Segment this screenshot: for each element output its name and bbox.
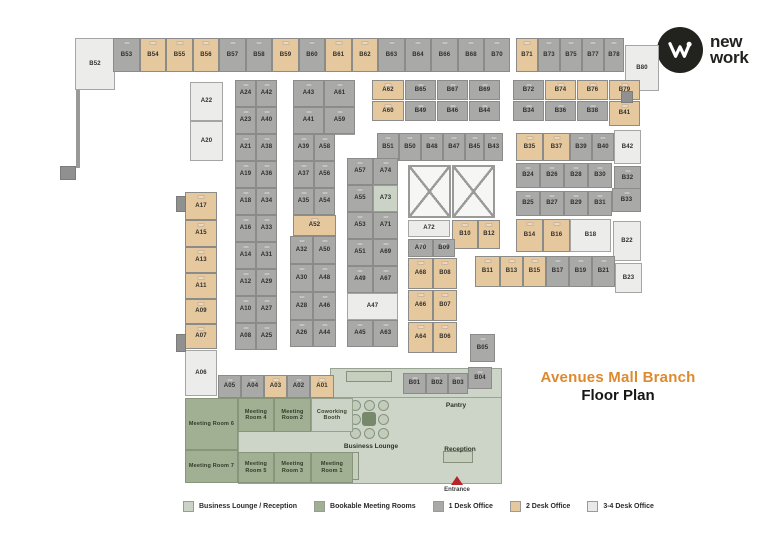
business-lounge-label: Business Lounge [336,443,406,450]
room-a25: A25 [256,323,277,350]
room-b06: B06 [433,322,457,353]
room-b05: B05 [470,334,495,362]
room-b08: B08 [433,258,457,289]
room-a70: A70 [408,239,433,257]
room-b47: B47 [443,133,465,161]
room-b35: B35 [516,133,543,161]
room-a27: A27 [256,296,277,323]
room-a47: A47 [347,293,398,320]
room-a08: A08 [235,323,256,350]
room-meeting-room-1: Meeting Room 1 [311,452,353,483]
floor-plan: new work Avenues Mall Branch Floor Plan … [0,0,777,549]
room-a61: A61 [324,80,355,107]
entrance-label: Entrance [435,487,479,493]
room-a31: A31 [256,242,277,269]
room-a52: A52 [293,215,336,236]
room-b63: B63 [378,38,405,72]
room-b21: B21 [592,256,615,287]
room-b11: B11 [475,256,500,287]
wall-segment [76,88,80,168]
room-a26: A26 [290,320,313,347]
room-a30: A30 [290,264,313,292]
room-a29: A29 [256,269,277,296]
room-a20: A20 [190,121,223,161]
room-b53: B53 [113,38,140,72]
w-mark-icon [665,35,695,65]
room-b15: B15 [523,256,546,287]
room-a53: A53 [347,212,373,239]
room-a07: A07 [185,324,217,349]
room-a21: A21 [235,134,256,161]
room-a66: A66 [408,290,433,321]
room-a38: A38 [256,134,277,161]
room-a51: A51 [347,239,373,266]
room-b45: B45 [465,133,484,161]
room-a05: A05 [218,375,241,398]
room-a48: A48 [313,264,336,292]
title-block: Avenues Mall Branch Floor Plan [520,369,716,404]
room-a02: A02 [287,375,310,398]
room-b58: B58 [246,38,272,72]
room-b42: B42 [614,130,641,164]
room-b65: B65 [405,80,436,100]
room-b34: B34 [513,101,544,121]
room-meeting-room-4: Meeting Room 4 [238,398,274,432]
room-a69: A69 [373,239,398,266]
room-b07: B07 [433,290,457,321]
newwork-logo-icon [657,27,703,73]
room-a37: A37 [293,161,314,188]
room-a64: A64 [408,322,433,353]
room-b76: B76 [577,80,608,100]
room-a45: A45 [347,320,373,347]
room-a32: A32 [290,236,313,264]
room-a67: A67 [373,266,398,293]
room-a23: A23 [235,107,256,134]
pantry-label: Pantry [436,402,476,409]
room-a50: A50 [313,236,336,264]
room-b66: B66 [431,38,458,72]
room-a01: A01 [310,375,334,398]
room-b78: B78 [604,38,624,72]
room-b55: B55 [166,38,193,72]
room-b17: B17 [546,256,569,287]
room-b75: B75 [560,38,582,72]
room-b61: B61 [325,38,352,72]
newwork-logo: new work [657,27,748,73]
room-a60: A60 [372,101,404,121]
room-a04: A04 [241,375,264,398]
room-b77: B77 [582,38,604,72]
room-b27: B27 [540,191,564,216]
legend-swatch [587,501,598,512]
legend-swatch [510,501,521,512]
legend-swatch [433,501,444,512]
room-b26: B26 [540,163,564,188]
room-b44: B44 [469,101,500,121]
room-b29: B29 [564,191,588,216]
room-b28: B28 [564,163,588,188]
room-b41: B41 [609,101,640,126]
logo-line2: work [710,50,748,66]
room-b56: B56 [193,38,219,72]
room-b51: B51 [377,133,399,161]
room-a19: A19 [235,161,256,188]
legend-label: Business Lounge / Reception [199,503,297,510]
room-meeting-room-7: Meeting Room 7 [185,450,238,483]
room-b71: B71 [516,38,538,72]
room-coworking-booth: Coworking Booth [311,398,353,432]
room-a42: A42 [256,80,277,107]
room-meeting-room-3: Meeting Room 3 [274,452,311,483]
room-b02: B02 [426,373,448,394]
elevator-shaft [408,165,451,218]
legend-label: 1 Desk Office [449,503,493,510]
room-b10: B10 [452,220,478,249]
room-b39: B39 [570,133,592,161]
room-a44: A44 [313,320,336,347]
reception-label: Reception [434,446,486,453]
lounge-table [378,428,389,439]
room-b32: B32 [614,166,641,190]
room-b24: B24 [516,163,540,188]
branch-title: Avenues Mall Branch [520,369,716,386]
room-a36: A36 [256,161,277,188]
room-b16: B16 [543,219,570,252]
legend-swatch [314,501,325,512]
room-a55: A55 [347,185,373,212]
legend-item-business-lounge-/-reception: Business Lounge / Reception [183,501,297,512]
room-a18: A18 [235,188,256,215]
legend: Business Lounge / ReceptionBookable Meet… [183,501,654,512]
room-b19: B19 [569,256,592,287]
room-b04: B04 [468,367,492,389]
legend-label: 3-4 Desk Office [603,503,654,510]
room-a17: A17 [185,192,217,220]
room-a57: A57 [347,158,373,185]
room-b59: B59 [272,38,299,72]
room-b09: B09 [433,239,455,257]
room-a22: A22 [190,82,223,121]
room-b12: B12 [478,220,500,249]
room-a33: A33 [256,215,277,242]
room-a46: A46 [313,292,336,320]
room-a24: A24 [235,80,256,107]
room-a16: A16 [235,215,256,242]
room-a39: A39 [293,134,314,161]
room-a03: A03 [264,375,287,398]
room-a68: A68 [408,258,433,289]
room-b70: B70 [484,38,510,72]
room-b74: B74 [545,80,576,100]
room-a06: A06 [185,350,217,396]
lounge-table [378,400,389,411]
room-a12: A12 [235,269,256,296]
legend-swatch [183,501,194,512]
room-b40: B40 [592,133,614,161]
room-meeting-room-6: Meeting Room 6 [185,398,238,450]
room-b52: B52 [75,38,115,90]
room-b03: B03 [448,373,468,394]
room-b38: B38 [577,101,608,121]
room-b69: B69 [469,80,500,100]
legend-item-3-4-desk-office: 3-4 Desk Office [587,501,654,512]
room-a11: A11 [185,273,217,299]
room-a72: A72 [408,220,450,237]
lounge-table [364,400,375,411]
room-b13: B13 [500,256,523,287]
room-b57: B57 [219,38,246,72]
lounge-furniture [346,371,392,382]
room-a71: A71 [373,212,398,239]
room-b72: B72 [513,80,544,100]
room-a54: A54 [314,188,335,215]
room-a34: A34 [256,188,277,215]
room-b37: B37 [543,133,570,161]
room-b46: B46 [437,101,468,121]
entrance-marker-icon [451,476,463,485]
newwork-logo-text: new work [710,34,748,66]
room-a28: A28 [290,292,313,320]
lounge-plant [362,412,376,426]
room-a40: A40 [256,107,277,134]
legend-item-1-desk-office: 1 Desk Office [433,501,493,512]
room-a74: A74 [373,158,398,185]
room-a10: A10 [235,296,256,323]
room-b54: B54 [140,38,166,72]
door-marker [176,334,186,352]
legend-label: Bookable Meeting Rooms [330,503,416,510]
room-b33: B33 [612,188,641,212]
room-b31: B31 [588,191,612,216]
room-b48: B48 [421,133,443,161]
room-a15: A15 [185,220,217,247]
door-marker [176,196,186,212]
lounge-table [378,414,389,425]
room-b25: B25 [516,191,540,216]
room-b14: B14 [516,219,543,252]
room-b49: B49 [405,101,436,121]
floor-plan-subtitle: Floor Plan [520,387,716,404]
room-meeting-room-2: Meeting Room 2 [274,398,311,432]
room-a56: A56 [314,161,335,188]
room-a63: A63 [373,320,398,347]
room-a59: A59 [324,107,355,134]
room-b01: B01 [403,373,426,394]
room-b22: B22 [613,221,641,261]
room-b43: B43 [484,133,503,161]
room-a09: A09 [185,299,217,324]
door-marker [60,166,76,180]
legend-item-bookable-meeting-rooms: Bookable Meeting Rooms [314,501,416,512]
room-a58: A58 [314,134,335,161]
room-b60: B60 [299,38,325,72]
room-b50: B50 [399,133,421,161]
room-b62: B62 [352,38,378,72]
room-a49: A49 [347,266,373,293]
room-b36: B36 [545,101,576,121]
room-a13: A13 [185,247,217,273]
door-marker [621,91,633,103]
room-b30: B30 [588,163,612,188]
room-b23: B23 [615,263,642,293]
room-b64: B64 [405,38,431,72]
room-a73: A73 [373,185,398,212]
room-b73: B73 [538,38,560,72]
room-a14: A14 [235,242,256,269]
lounge-table [364,428,375,439]
room-a35: A35 [293,188,314,215]
room-b67: B67 [437,80,468,100]
legend-item-2-desk-office: 2 Desk Office [510,501,570,512]
room-a62: A62 [372,80,404,100]
room-b68: B68 [458,38,484,72]
room-a43: A43 [293,80,324,107]
legend-label: 2 Desk Office [526,503,570,510]
room-b18: B18 [570,219,611,252]
elevator-shaft [452,165,495,218]
room-a41: A41 [293,107,324,134]
room-meeting-room-5: Meeting Room 5 [238,452,274,483]
